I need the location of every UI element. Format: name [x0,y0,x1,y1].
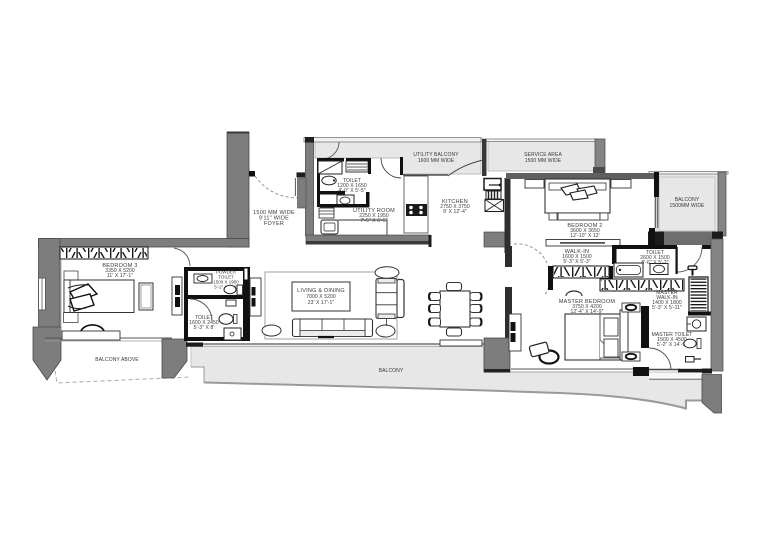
svg-text:12'-10" X 12': 12'-10" X 12' [570,233,599,239]
svg-text:7'-5" X 6'-5": 7'-5" X 6'-5" [360,218,387,224]
svg-text:11' X 17'-1": 11' X 17'-1" [107,273,133,279]
svg-text:5'-3" X 8': 5'-3" X 8' [194,325,215,331]
svg-text:1600 MM WIDE: 1600 MM WIDE [418,158,455,164]
svg-text:5'-3" X 5'-3": 5'-3" X 5'-3" [563,259,590,265]
svg-text:23' X 17'-1": 23' X 17'-1" [308,300,335,306]
svg-text:BALCONY: BALCONY [379,368,404,374]
svg-text:1500MM WIDE: 1500MM WIDE [670,203,706,209]
svg-text:BALCONY ABOVE: BALCONY ABOVE [95,357,139,363]
svg-text:9' X 12'-4": 9' X 12'-4" [443,209,467,215]
svg-text:5'-3" X 5'-11": 5'-3" X 5'-11" [652,305,682,311]
svg-text:FOYER: FOYER [264,221,284,227]
svg-text:1500 MM WIDE: 1500 MM WIDE [525,158,562,164]
svg-text:5'-2" X 14'-9": 5'-2" X 14'-9" [657,342,687,348]
